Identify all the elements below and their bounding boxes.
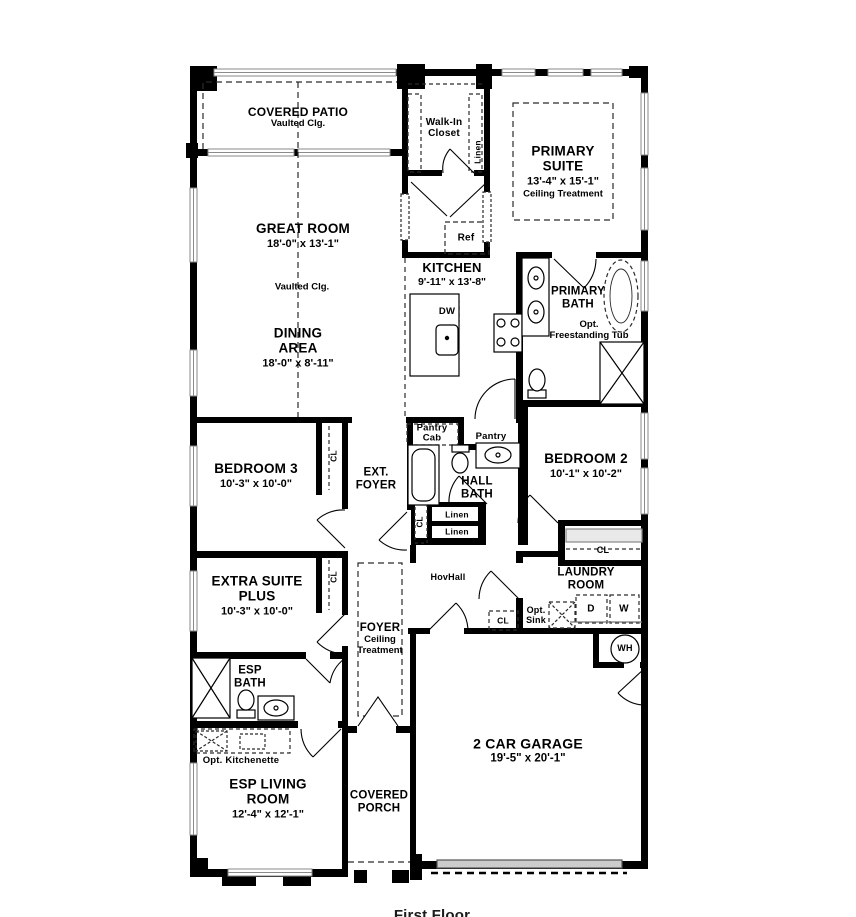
covered-porch-label: COVERED PORCH	[340, 789, 418, 814]
hall-bath-toilet	[452, 445, 469, 452]
walk-in-closet-label: Walk-In Closet	[412, 117, 476, 139]
front-door	[358, 697, 398, 726]
esp-living-room-dims: 12'-4" x 12'-1"	[203, 807, 333, 822]
water-heater-label: WH	[617, 644, 632, 654]
great-room-label: GREAT ROOM 18'-0" x 13'-1"	[233, 222, 373, 252]
esp-bath-label: ESP BATH	[225, 664, 275, 689]
bedroom-3-label: BEDROOM 3 10'-3" x 10'-0"	[191, 462, 321, 492]
hovhall-label: HovHall	[431, 573, 466, 583]
great-room-name: GREAT ROOM	[253, 222, 353, 237]
linen-label-1: Linen	[445, 510, 469, 519]
walk-in-closet-linen-label: Linen	[473, 140, 482, 164]
kitchen-name: KITCHEN	[392, 261, 512, 275]
bedroom-2-dims: 10'-1" x 10'-2"	[521, 467, 651, 482]
primary-bath-label: PRIMARY BATH	[542, 285, 614, 310]
pantry-cab-label: Pantry Cab	[408, 424, 456, 445]
dining-area-name: DINING AREA	[258, 327, 338, 357]
hall-bath-label: HALL BATH	[450, 475, 504, 500]
laundry-room-label: LAUNDRY ROOM	[545, 566, 627, 591]
great-room-dims: 18'-0" x 13'-1"	[233, 237, 373, 252]
garage-label: 2 CAR GARAGE 19'-5" x 20'-1"	[438, 737, 618, 768]
hovhall-closet-label: CL	[497, 616, 509, 625]
pantry-label: Pantry	[476, 432, 507, 442]
dining-area-dims: 18'-0" x 8'-11"	[233, 356, 363, 371]
great-room-ceiling-note: Vaulted Clg.	[257, 283, 347, 294]
kitchen-dims: 9'-11" x 13'-8"	[392, 275, 512, 289]
linen-label-2: Linen	[445, 527, 469, 536]
ref-label: Ref	[458, 233, 475, 244]
foyer-note: Ceiling Treatment	[347, 634, 413, 656]
covered-patio-label: COVERED PATIO Vaulted Clg.	[223, 106, 373, 130]
opt-freestanding-tub-label: Opt. Freestanding Tub	[549, 320, 629, 342]
ext-foyer-label: EXT. FOYER	[349, 466, 403, 491]
garage-name: 2 CAR GARAGE	[438, 737, 618, 752]
floor-plan-page: COVERED PATIO Vaulted Clg. GREAT ROOM 18…	[0, 0, 856, 917]
kitchen-label: KITCHEN 9'-11" x 13'-8"	[392, 261, 512, 289]
bedroom-2-name: BEDROOM 2	[521, 452, 651, 467]
foyer-label: FOYER Ceiling Treatment	[345, 622, 415, 656]
extra-suite-closet-label: CL	[329, 571, 338, 583]
dryer-label: D	[587, 604, 594, 615]
primary-suite-note: Ceiling Treatment	[498, 189, 628, 200]
extra-suite-plus-name: EXTRA SUITE PLUS	[211, 575, 303, 605]
bedroom-3-name: BEDROOM 3	[191, 462, 321, 477]
plan-caption: First Floor	[372, 908, 492, 917]
primary-suite-dims: 13'-4" x 15'-1"	[498, 174, 628, 189]
dw-label: DW	[439, 307, 455, 317]
foyer-name: FOYER	[345, 622, 415, 635]
opt-sink-label: Opt. Sink	[520, 606, 552, 626]
esp-bath-toilet	[237, 710, 255, 718]
esp-living-room-label: ESP LIVING ROOM 12'-4" x 12'-1"	[203, 778, 333, 823]
hall-closet-label: CL	[417, 516, 426, 527]
garage-door	[437, 860, 622, 868]
washer-label: W	[619, 604, 629, 615]
primary-suite-name: PRIMARY SUITE	[516, 144, 611, 174]
bedroom-2-label: BEDROOM 2 10'-1" x 10'-2"	[521, 452, 651, 482]
covered-patio-note: Vaulted Clg.	[223, 119, 373, 130]
primary-suite-label: PRIMARY SUITE 13'-4" x 15'-1" Ceiling Tr…	[498, 144, 628, 199]
esp-living-room-name: ESP LIVING ROOM	[212, 778, 324, 808]
extra-suite-plus-label: EXTRA SUITE PLUS 10'-3" x 10'-0"	[192, 575, 322, 620]
bedroom-2-closet-label: CL	[597, 546, 609, 556]
dining-area-label: DINING AREA 18'-0" x 8'-11"	[233, 327, 363, 372]
extra-suite-plus-dims: 10'-3" x 10'-0"	[192, 604, 322, 619]
bedroom-3-closet-label: CL	[329, 450, 338, 462]
bedroom-3-dims: 10'-3" x 10'-0"	[191, 477, 321, 492]
opt-kitchenette-label: Opt. Kitchenette	[181, 756, 301, 766]
garage-dims: 19'-5" x 20'-1"	[438, 752, 618, 768]
